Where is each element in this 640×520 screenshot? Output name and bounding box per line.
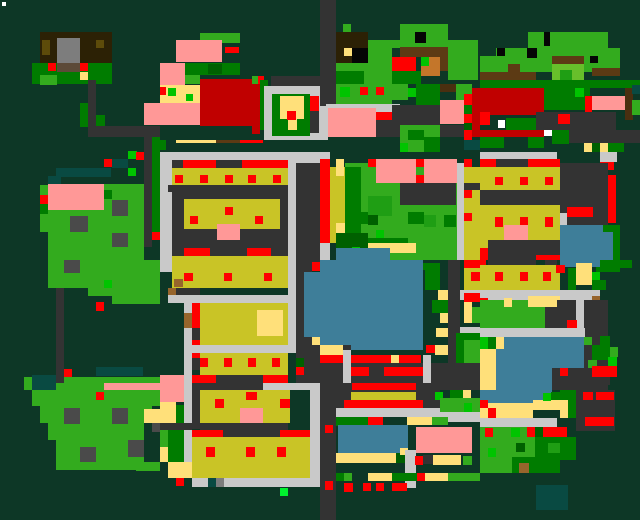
red-accent-tile — [471, 272, 480, 281]
red-accent-tile — [592, 366, 617, 377]
dark-tree-tile — [168, 430, 184, 462]
dark-tree-tile — [96, 63, 112, 72]
bright-grass-tile — [336, 63, 392, 105]
red-accent-tile — [392, 57, 416, 71]
bright-grass-tile — [368, 48, 392, 64]
dark-tree-tile — [444, 215, 456, 227]
sidewalk-tile — [480, 418, 557, 427]
asphalt-road-tile — [192, 358, 200, 370]
sand-path-tile — [391, 355, 399, 363]
dark-tree-tile — [592, 280, 606, 290]
red-accent-tile — [480, 400, 488, 408]
dark-tree-tile — [600, 336, 610, 357]
dark-tree-tile — [176, 405, 184, 423]
leaf-patch-tile — [548, 443, 560, 453]
red-accent-tile — [104, 159, 112, 167]
sand-path-tile — [407, 417, 432, 425]
dark-tree-tile — [416, 84, 440, 105]
dark-pond-tile — [208, 478, 216, 487]
water-tile — [304, 272, 320, 337]
asphalt-road-tile — [296, 163, 320, 263]
stone-tile — [216, 478, 224, 487]
asphalt-road-tile — [320, 0, 336, 106]
asphalt-road-tile — [552, 368, 584, 390]
deep-tree-tile — [464, 123, 472, 130]
leaf-patch-tile — [424, 215, 436, 227]
dark-tree-tile — [506, 118, 536, 130]
sand-path-tile — [560, 400, 568, 418]
red-accent-tile — [312, 262, 320, 271]
asphalt-road-tile — [569, 130, 640, 143]
hole-tile — [590, 56, 598, 63]
asphalt-road-tile — [216, 375, 263, 383]
bright-grass-tile — [464, 340, 480, 363]
red-accent-tile — [175, 175, 183, 183]
red-accent-tile — [352, 383, 416, 390]
sand-path-tile — [440, 313, 448, 323]
red-roof-tile — [480, 130, 544, 137]
water-tile — [336, 248, 390, 260]
building-floor-tile — [480, 240, 488, 248]
tree-shadow-tile — [128, 440, 144, 457]
bright-grass-tile — [88, 288, 160, 296]
red-accent-tile — [320, 355, 343, 363]
sand-path-tile — [312, 337, 320, 345]
asphalt-road-tile — [192, 390, 200, 429]
bright-grass-tile — [610, 347, 618, 357]
dark-tree-tile — [480, 137, 504, 148]
clay-tile — [429, 57, 440, 66]
asphalt-road-tile — [88, 80, 96, 127]
asphalt-road-tile — [192, 328, 200, 340]
red-accent-tile — [248, 175, 256, 183]
asphalt-road-tile — [584, 300, 608, 337]
red-accent-tile — [495, 217, 503, 227]
sand-path-tile — [288, 119, 297, 130]
pink-building-tile — [176, 40, 222, 62]
asphalt-road-tile — [320, 383, 352, 390]
lit-shrub-tile — [186, 94, 193, 101]
dark-pond-tile — [56, 168, 111, 177]
red-accent-tile — [80, 63, 88, 71]
sidewalk-tile — [263, 383, 320, 390]
dark-tree-tile — [551, 392, 560, 400]
red-accent-tile — [416, 159, 424, 167]
sand-path-tile — [336, 159, 344, 176]
asphalt-road-tile — [310, 111, 319, 133]
marker-tile — [544, 130, 552, 136]
bright-grass-tile — [136, 462, 160, 471]
sidewalk-tile — [480, 328, 585, 337]
red-accent-tile — [225, 175, 233, 183]
red-accent-tile — [495, 272, 503, 281]
red-accent-tile — [480, 159, 496, 167]
red-accent-tile — [567, 207, 593, 217]
dark-tree-tile — [424, 137, 440, 152]
red-accent-tile — [464, 159, 472, 167]
red-accent-tile — [426, 345, 435, 353]
asphalt-road-tile — [536, 112, 616, 130]
lit-shrub-tile — [464, 403, 472, 412]
sand-path-tile — [368, 473, 392, 481]
red-accent-tile — [344, 483, 353, 492]
dark-tree-tile — [528, 137, 544, 148]
water-tile — [603, 232, 613, 260]
red-accent-tile — [376, 112, 392, 120]
lit-shrub-tile — [128, 168, 136, 176]
sand-path-tile — [576, 263, 592, 285]
pink-building-tile — [240, 408, 263, 423]
log-tile — [440, 84, 456, 92]
dark-tree-tile — [392, 71, 421, 84]
sidewalk-tile — [320, 243, 330, 260]
bright-grass-tile — [343, 24, 351, 32]
red-accent-tile — [363, 483, 371, 491]
red-accent-tile — [495, 177, 503, 185]
red-accent-tile — [376, 483, 384, 491]
sand-path-tile — [435, 345, 448, 355]
deep-tree-tile — [535, 427, 543, 437]
asphalt-road-tile — [440, 125, 465, 137]
red-accent-tile — [520, 177, 528, 185]
sand-path-tile — [160, 85, 200, 103]
taupe-roof-tile — [57, 63, 80, 72]
lit-shrub-tile — [408, 88, 416, 97]
red-accent-tile — [263, 375, 288, 383]
dark-pond-tile — [536, 485, 568, 510]
red-accent-tile — [200, 358, 208, 367]
asphalt-road-tile — [496, 159, 528, 167]
red-accent-tile — [310, 96, 319, 111]
water-tile — [496, 368, 552, 390]
asphalt-road-tile — [200, 423, 288, 430]
bright-grass-tile — [448, 473, 480, 481]
lit-shrub-tile — [608, 357, 617, 366]
asphalt-road-tile — [56, 377, 64, 383]
bright-grass-tile — [632, 100, 640, 115]
red-accent-tile — [246, 392, 257, 400]
pink-building-tile — [504, 225, 528, 240]
asphalt-road-tile — [423, 455, 433, 464]
red-accent-tile — [520, 272, 528, 281]
red-accent-tile — [545, 217, 553, 227]
red-accent-tile — [485, 428, 493, 437]
sand-path-tile — [584, 143, 592, 152]
red-accent-tile — [368, 159, 376, 167]
sand-path-tile — [504, 298, 512, 307]
deep-tree-tile — [296, 358, 304, 367]
asphalt-road-tile — [464, 183, 480, 190]
pink-building-tile — [416, 427, 472, 453]
red-accent-tile — [160, 87, 166, 95]
sidewalk-tile — [184, 390, 192, 423]
pink-building-tile — [376, 159, 416, 183]
red-accent-tile — [344, 400, 423, 408]
asphalt-road-tile — [600, 377, 610, 385]
sand-path-tile — [438, 290, 448, 300]
asphalt-road-tile — [56, 288, 64, 383]
leaf-patch-tile — [368, 196, 392, 216]
dirt-tile — [400, 47, 448, 57]
sand-path-tile — [436, 328, 448, 337]
red-accent-tile — [464, 190, 472, 198]
bright-grass-tile — [48, 423, 144, 440]
bright-grass-tile — [472, 307, 480, 323]
lit-shrub-tile — [104, 280, 112, 288]
wood-tile — [42, 40, 50, 55]
lit-shrub-tile — [168, 88, 176, 96]
sand-path-tile — [600, 143, 608, 152]
dark-tree-tile — [480, 80, 640, 88]
red-accent-tile — [246, 447, 255, 457]
tree-shadow-tile — [64, 260, 80, 273]
red-accent-tile — [184, 273, 193, 281]
dark-tree-tile — [423, 263, 440, 270]
red-accent-tile — [264, 273, 272, 281]
dark-tree-tile — [336, 71, 364, 84]
bright-grass-tile — [528, 32, 608, 48]
dark-tree-tile — [425, 270, 440, 290]
red-accent-tile — [376, 87, 384, 95]
red-accent-tile — [48, 63, 56, 71]
sand-path-tile — [533, 400, 560, 410]
red-accent-tile — [325, 481, 333, 490]
red-accent-tile — [272, 358, 280, 367]
dark-tree-tile — [152, 137, 160, 232]
dirt-tile — [216, 140, 240, 143]
bright-grass-tile — [160, 430, 168, 447]
lit-shrub-tile — [340, 87, 350, 97]
red-accent-tile — [488, 408, 496, 418]
dark-tree-tile — [608, 143, 624, 152]
dark-tree-tile — [408, 212, 424, 224]
wood-tile — [96, 40, 104, 48]
red-accent-tile — [225, 207, 233, 215]
red-accent-tile — [296, 367, 304, 375]
dark-tree-tile — [392, 473, 417, 481]
red-accent-tile — [40, 195, 48, 204]
bright-grass-tile — [40, 406, 152, 423]
red-accent-tile — [255, 216, 263, 224]
sidewalk-tile — [184, 345, 296, 353]
red-accent-tile — [192, 430, 223, 437]
red-accent-tile — [480, 248, 488, 260]
red-accent-tile — [325, 425, 333, 433]
dark-tree-tile — [40, 204, 48, 214]
red-accent-tile — [416, 175, 424, 183]
sand-path-tile — [433, 455, 461, 465]
hole-tile — [352, 48, 368, 63]
sand-path-tile — [160, 402, 176, 423]
dark-pond-tile — [32, 375, 56, 390]
red-accent-tile — [273, 175, 281, 183]
bright-grass-tile — [440, 398, 480, 412]
red-accent-tile — [192, 303, 200, 328]
red-accent-tile — [464, 94, 472, 105]
bright-grass-tile — [185, 75, 200, 84]
sand-path-tile — [464, 302, 472, 323]
asphalt-road-tile — [400, 183, 456, 205]
red-accent-tile — [280, 399, 290, 408]
red-roof-tile — [252, 84, 260, 134]
bright-grass-tile — [448, 48, 478, 80]
tree-shadow-tile — [112, 408, 128, 424]
marker-tile — [2, 2, 6, 6]
red-accent-tile — [583, 392, 593, 400]
pink-building-tile — [48, 184, 104, 210]
red-accent-tile — [543, 427, 567, 437]
asphalt-road-tile — [376, 120, 400, 137]
building-floor-tile — [351, 392, 416, 400]
hole-tile — [544, 32, 550, 46]
sidewalk-tile — [184, 430, 192, 462]
leaf-patch-tile — [560, 70, 572, 80]
tree-shadow-tile — [70, 216, 88, 232]
bright-grass-tile — [432, 417, 448, 425]
red-accent-tile — [556, 265, 565, 273]
red-accent-tile — [528, 159, 560, 167]
red-accent-tile — [527, 427, 535, 437]
dirt-tile — [552, 56, 584, 64]
dirt-tile — [592, 68, 620, 76]
red-accent-tile — [536, 255, 560, 260]
deep-tree-tile — [368, 215, 378, 225]
bright-grass-tile — [480, 463, 512, 473]
red-accent-tile — [480, 112, 490, 125]
red-accent-tile — [464, 114, 472, 123]
sidewalk-tile — [310, 390, 320, 487]
red-accent-tile — [608, 175, 616, 223]
red-accent-tile — [152, 232, 160, 240]
red-accent-tile — [248, 358, 256, 367]
red-accent-tile — [280, 430, 310, 437]
dark-tree-tile — [408, 130, 424, 140]
sand-path-tile — [480, 349, 496, 390]
tree-shadow-tile — [152, 423, 160, 432]
sand-path-tile — [528, 296, 560, 307]
lit-shrub-tile — [488, 448, 496, 457]
tree-shadow-tile — [80, 447, 96, 462]
deep-tree-tile — [592, 143, 600, 152]
hole-tile — [415, 32, 426, 43]
sidewalk-tile — [336, 408, 440, 417]
dark-tree-tile — [488, 337, 496, 349]
sand-path-tile — [168, 462, 192, 478]
lit-shrub-tile — [511, 428, 520, 437]
lit-shrub-tile — [480, 337, 488, 349]
asphalt-road-tile — [192, 383, 263, 390]
dirt-tile — [440, 57, 448, 71]
dark-tree-tile — [616, 260, 632, 268]
red-accent-tile — [224, 273, 232, 281]
red-accent-tile — [543, 272, 551, 281]
lit-shrub-tile — [421, 57, 429, 66]
asphalt-road-tile — [144, 130, 152, 247]
red-accent-tile — [64, 369, 72, 377]
bright-grass-tile — [40, 75, 57, 85]
lit-shrub-tile — [543, 393, 551, 401]
red-accent-tile — [545, 177, 553, 185]
red-accent-tile — [224, 358, 232, 367]
dark-tree-tile — [336, 473, 344, 481]
red-accent-tile — [247, 248, 271, 256]
dark-pond-tile — [112, 159, 128, 168]
stump-tile — [519, 463, 529, 473]
bright-grass-tile — [392, 84, 408, 100]
red-accent-tile — [320, 159, 330, 243]
red-accent-tile — [200, 175, 208, 183]
pink-building-tile — [424, 159, 457, 183]
red-accent-tile — [560, 368, 568, 376]
tree-shadow-tile — [112, 200, 128, 216]
red-accent-tile — [287, 111, 296, 120]
deep-tree-tile — [208, 64, 222, 74]
asphalt-road-tile — [320, 390, 336, 520]
dark-tree-tile — [464, 105, 472, 114]
asphalt-road-tile — [480, 190, 560, 205]
sand-path-tile — [463, 390, 471, 398]
red-roof-tile — [472, 88, 480, 137]
sand-path-tile — [160, 447, 168, 462]
sand-path-tile — [80, 72, 88, 80]
water-tile — [320, 260, 423, 350]
dirt-tile — [480, 72, 536, 80]
sand-path-tile — [425, 473, 448, 481]
lit-shrub-tile — [400, 143, 408, 152]
dark-tree-tile — [352, 212, 368, 224]
dark-tree-tile — [80, 103, 88, 127]
asphalt-road-tile — [223, 430, 280, 437]
dark-tree-tile — [568, 268, 576, 290]
pink-building-tile — [160, 375, 184, 402]
dark-pond-tile — [632, 85, 640, 94]
dark-tree-tile — [450, 390, 463, 398]
tree-shadow-tile — [112, 233, 128, 247]
sand-path-tile — [496, 337, 504, 349]
stump-tile — [174, 279, 183, 287]
red-accent-tile — [596, 392, 614, 400]
red-accent-tile — [384, 367, 424, 376]
asphalt-road-tile — [168, 185, 288, 192]
red-accent-tile — [464, 293, 480, 302]
sand-path-tile — [320, 345, 343, 355]
red-accent-tile — [558, 114, 570, 124]
dark-tree-tile — [552, 130, 569, 144]
red-accent-tile — [464, 260, 480, 268]
water-tile — [504, 337, 584, 368]
dirt-tile — [508, 64, 520, 72]
bright-grass-tile — [584, 337, 592, 345]
tree-shadow-tile — [64, 408, 80, 424]
sand-path-tile — [344, 48, 352, 56]
red-accent-tile — [206, 447, 215, 457]
pink-building-tile — [217, 224, 240, 240]
red-accent-tile — [225, 47, 239, 53]
building-floor-tile — [172, 256, 288, 288]
red-roof-tile — [480, 88, 544, 115]
water-tile — [557, 225, 603, 260]
pixel-town-map — [0, 0, 640, 520]
sand-path-tile — [144, 409, 160, 423]
lit-shrub-tile — [376, 230, 384, 238]
red-accent-tile — [184, 248, 210, 256]
red-accent-tile — [96, 392, 104, 400]
lit-shrub-tile — [575, 88, 584, 97]
pink-building-tile — [160, 63, 185, 85]
pink-building-tile — [328, 108, 376, 137]
red-accent-tile — [242, 160, 288, 168]
red-accent-tile — [464, 213, 472, 221]
